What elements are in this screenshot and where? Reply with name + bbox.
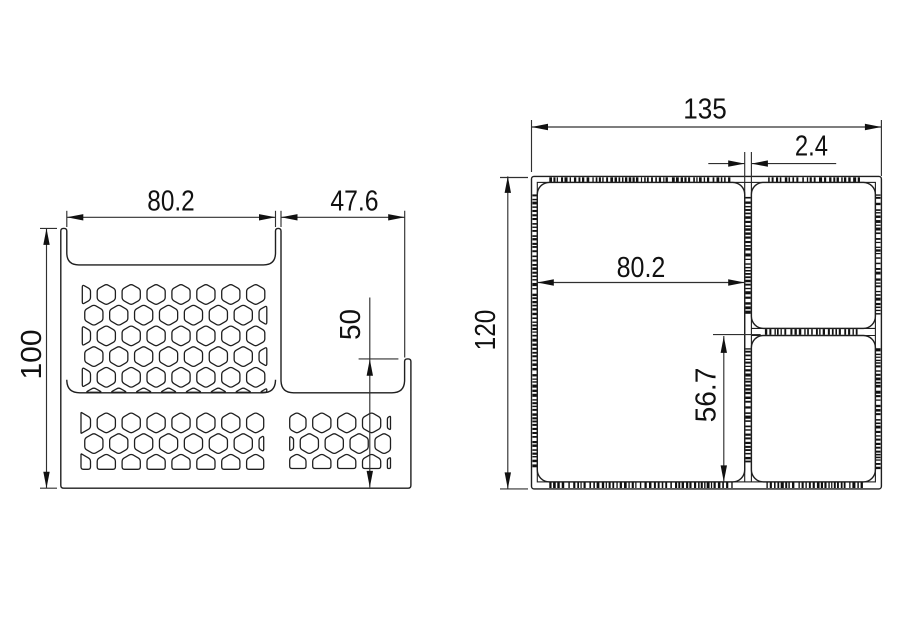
svg-text:120: 120 [470, 310, 502, 351]
svg-text:2.4: 2.4 [795, 131, 828, 163]
svg-text:50: 50 [335, 309, 367, 340]
svg-text:80.2: 80.2 [147, 186, 194, 218]
svg-text:56.7: 56.7 [691, 368, 723, 423]
svg-text:47.6: 47.6 [330, 186, 378, 218]
svg-text:80.2: 80.2 [617, 252, 666, 284]
svg-text:135: 135 [683, 94, 727, 126]
svg-text:100: 100 [16, 330, 48, 380]
